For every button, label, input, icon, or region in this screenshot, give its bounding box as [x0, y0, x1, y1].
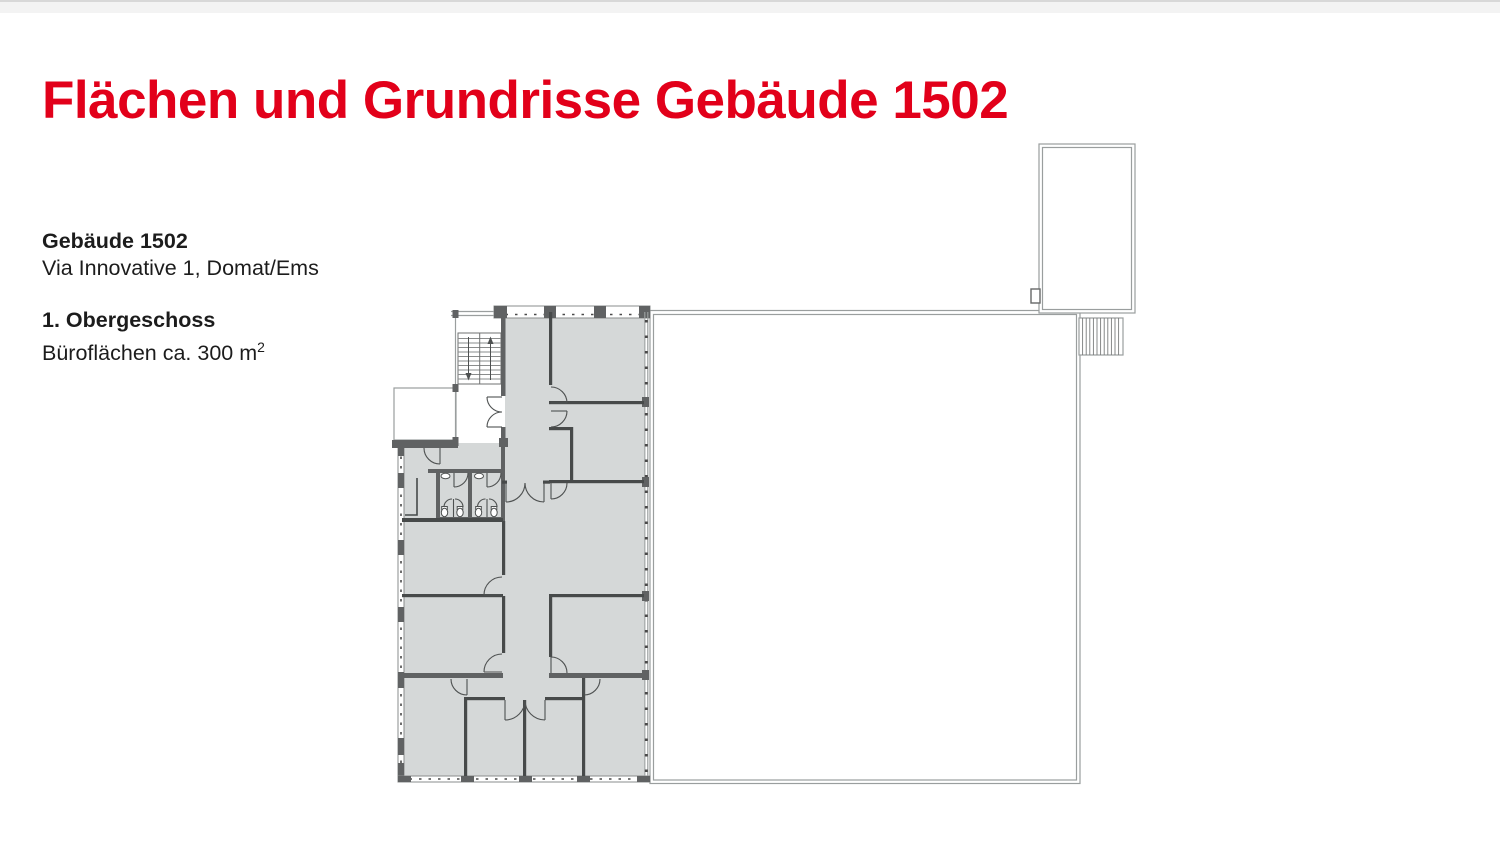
external-stairs-icon	[1079, 318, 1123, 355]
office-block	[392, 306, 650, 782]
annex-rectangle	[1031, 144, 1135, 313]
exterior-wall-bottom	[398, 776, 650, 782]
porch-box	[394, 388, 456, 440]
sink-icon	[441, 473, 450, 479]
toilet-icon	[491, 507, 497, 517]
toilet-icon	[441, 507, 447, 517]
annex-notch	[1031, 289, 1040, 303]
sink-icon	[475, 473, 484, 479]
vestibule-double-door	[487, 397, 502, 427]
toilet-icon	[457, 507, 463, 517]
floor-plan	[0, 0, 1500, 844]
toilet-icon	[475, 507, 481, 517]
exterior-wall-left	[398, 443, 404, 782]
stairs-icon	[458, 333, 501, 384]
hall-outline	[650, 311, 1080, 784]
